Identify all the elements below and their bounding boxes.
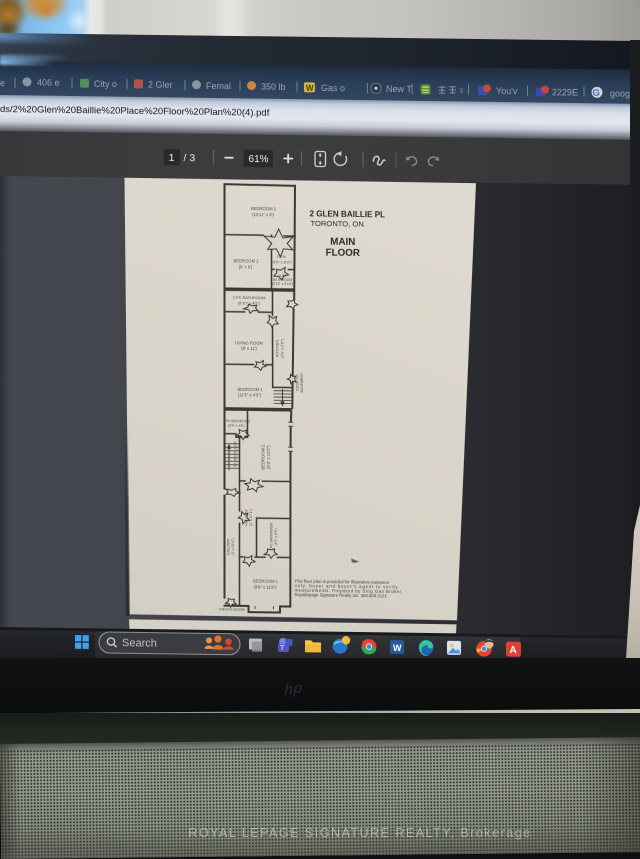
svg-text:(5'10" x 5'10"): (5'10" x 5'10"): [272, 282, 293, 286]
svg-text:DOOR TO: DOOR TO: [296, 374, 300, 391]
svg-text:(5'10" x 4'5"): (5'10" x 4'5"): [238, 300, 261, 305]
svg-text:(23' x 2'6"): (23' x 2'6"): [280, 338, 285, 357]
svg-text:HALLWAY: HALLWAY: [227, 538, 231, 555]
svg-text:FLOOR: FLOOR: [326, 248, 360, 259]
svg-text:TO 2ND FLOOR: TO 2ND FLOOR: [234, 441, 238, 467]
svg-text:(11'5" x 4'5"): (11'5" x 4'5"): [238, 392, 262, 397]
svg-text:W: W: [393, 643, 402, 653]
svg-text:Search: Search: [122, 637, 157, 649]
svg-text:(5'9" x 8'3"): (5'9" x 8'3"): [271, 259, 292, 264]
svg-text:(9'8" x 11'5"): (9'8" x 11'5"): [253, 585, 277, 590]
svg-text:BASEMENT: BASEMENT: [300, 372, 304, 393]
svg-text:(8' x 9'): (8' x 9'): [239, 264, 253, 269]
svg-text:HALLWAY: HALLWAY: [245, 509, 249, 526]
svg-text:(8' x 11'): (8' x 11'): [241, 346, 257, 351]
svg-text:(2' x 17'1"): (2' x 17'1"): [249, 509, 253, 526]
svg-text:MAIN: MAIN: [330, 237, 355, 248]
svg-text:TORONTO, ON: TORONTO, ON: [311, 219, 364, 229]
svg-text:BEDROOM 2: BEDROOM 2: [261, 444, 266, 470]
svg-text:(5'4" x 4'6"): (5'4" x 4'6"): [228, 424, 245, 428]
svg-text:2 PC BATHROOM: 2 PC BATHROOM: [270, 523, 274, 551]
svg-text:FRONT DOOR: FRONT DOOR: [219, 608, 245, 612]
svg-text:(4'1" x 4'5"): (4'1" x 4'5"): [274, 528, 278, 545]
svg-text:BEDROOM 2: BEDROOM 2: [251, 206, 277, 211]
svg-text:Royallepage Signature Realty I: Royallepage Signature Realty Inc. 365.50…: [295, 592, 388, 598]
svg-text:2 GLEN BAILLIE PL: 2 GLEN BAILLIE PL: [310, 209, 386, 219]
svg-text:T: T: [280, 645, 285, 652]
svg-text:(2' x 23'4"): (2' x 23'4"): [231, 538, 235, 555]
svg-text:BEDROOM 1: BEDROOM 1: [237, 387, 263, 392]
svg-text:BEDROOM 1: BEDROOM 1: [233, 258, 259, 263]
svg-text:(12'11" x 8'): (12'11" x 8'): [252, 212, 274, 217]
svg-text:BEDROOM 1: BEDROOM 1: [253, 579, 279, 584]
svg-text:(5'3" x 13'2"): (5'3" x 13'2"): [266, 445, 271, 469]
svg-text:A: A: [510, 645, 517, 656]
